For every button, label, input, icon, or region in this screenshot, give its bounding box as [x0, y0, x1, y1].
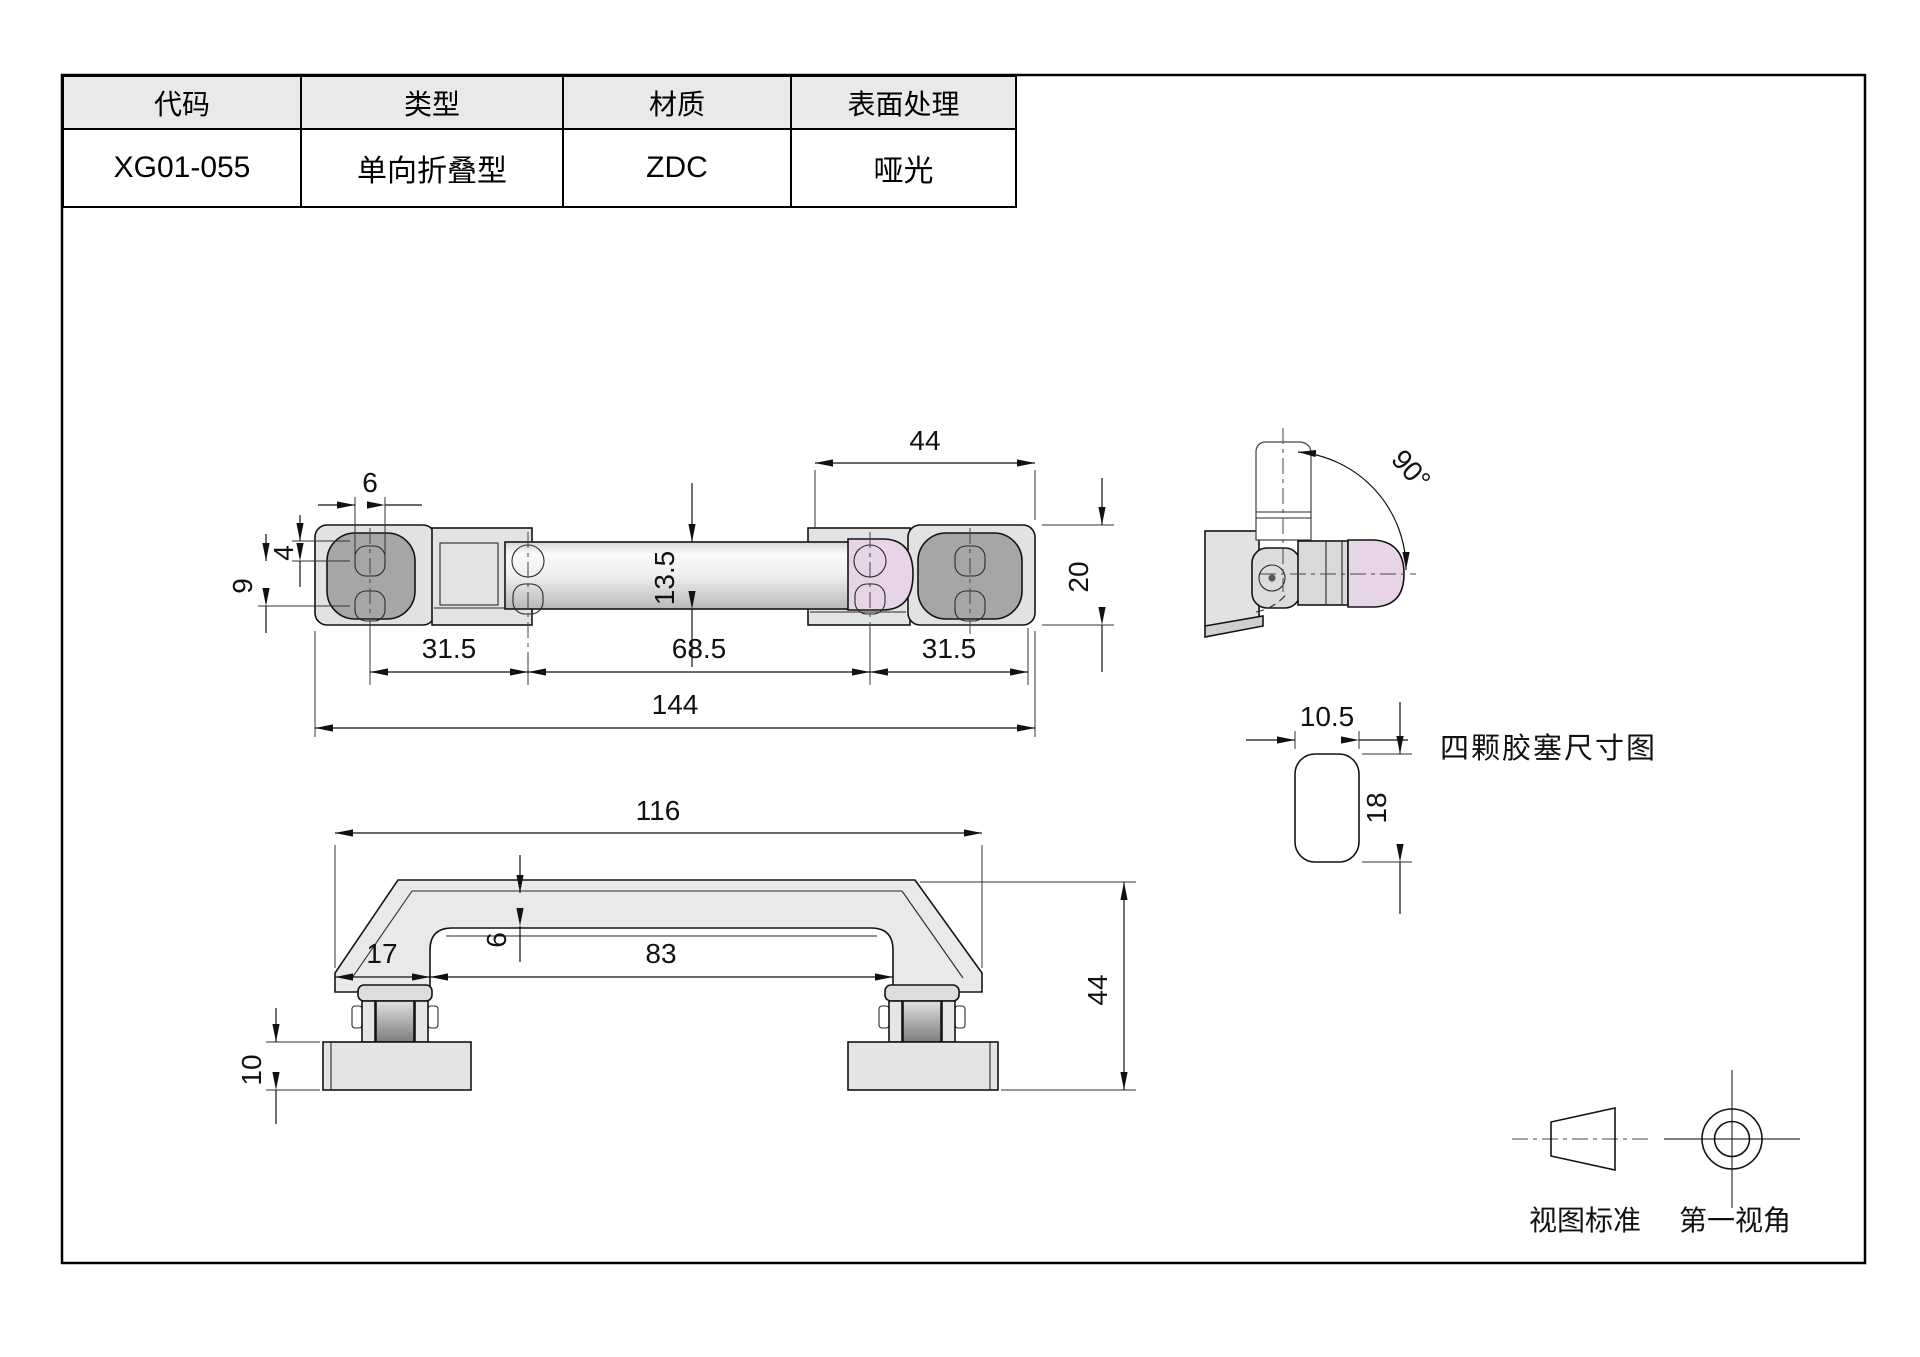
dim-90deg: 90° — [1385, 444, 1436, 496]
dim-144: 144 — [652, 689, 699, 720]
spec-value-type: 单向折叠型 — [302, 130, 564, 206]
dim-9: 9 — [227, 578, 258, 594]
left-base-plate — [323, 1042, 471, 1090]
view-standard-label: 视图标准 — [1529, 1205, 1641, 1236]
side-view: 90° — [1205, 428, 1437, 637]
dim-17: 17 — [366, 938, 397, 969]
dim-4: 4 — [268, 545, 299, 561]
left-hinge-roller — [376, 1001, 414, 1042]
dim-44-top: 44 — [909, 425, 940, 456]
dim-10: 10 — [236, 1054, 267, 1085]
dim-44-front: 44 — [1082, 974, 1113, 1005]
first-angle-label: 第一视角 — [1679, 1205, 1791, 1236]
dim-31-5-left: 31.5 — [422, 633, 477, 664]
spec-header-material: 材质 — [564, 77, 792, 130]
dim-83: 83 — [645, 938, 676, 969]
spec-header-code: 代码 — [64, 77, 302, 130]
right-hinge-roller — [903, 1001, 941, 1042]
spec-value-finish: 哑光 — [792, 130, 1015, 206]
dim-68-5: 68.5 — [672, 633, 727, 664]
dim-6-top: 6 — [362, 467, 378, 498]
spec-header-type: 类型 — [302, 77, 564, 130]
drawing-sheet: 6 4 9 13.5 44 20 31.5 68.5 — [0, 0, 1920, 1357]
dim-6-front: 6 — [481, 932, 512, 948]
spec-header-finish: 表面处理 — [792, 77, 1015, 130]
dim-116: 116 — [636, 795, 681, 826]
dim-20: 20 — [1063, 561, 1094, 592]
spec-value-material: ZDC — [564, 130, 792, 206]
dim-10-5: 10.5 — [1300, 701, 1355, 732]
grip-bar — [505, 542, 872, 609]
spec-table: 代码 类型 材质 表面处理 XG01-055 单向折叠型 ZDC 哑光 — [62, 75, 1017, 208]
top-view: 6 4 9 13.5 44 20 31.5 68.5 — [227, 425, 1114, 737]
front-view: 116 6 17 83 44 10 — [236, 795, 1136, 1124]
plug-detail: 10.5 18 四颗胶塞尺寸图 — [1246, 701, 1657, 914]
plug-detail-label: 四颗胶塞尺寸图 — [1440, 732, 1657, 765]
projection-symbols: 视图标准 第一视角 — [1512, 1070, 1800, 1236]
dim-13-5: 13.5 — [649, 551, 680, 606]
dim-31-5-right: 31.5 — [922, 633, 977, 664]
side-bracket — [1205, 531, 1259, 626]
right-base-plate — [848, 1042, 998, 1090]
handle-joint — [1298, 541, 1348, 605]
plug-outline — [1295, 754, 1359, 862]
spec-value-code: XG01-055 — [64, 130, 302, 206]
dim-18: 18 — [1361, 792, 1392, 823]
